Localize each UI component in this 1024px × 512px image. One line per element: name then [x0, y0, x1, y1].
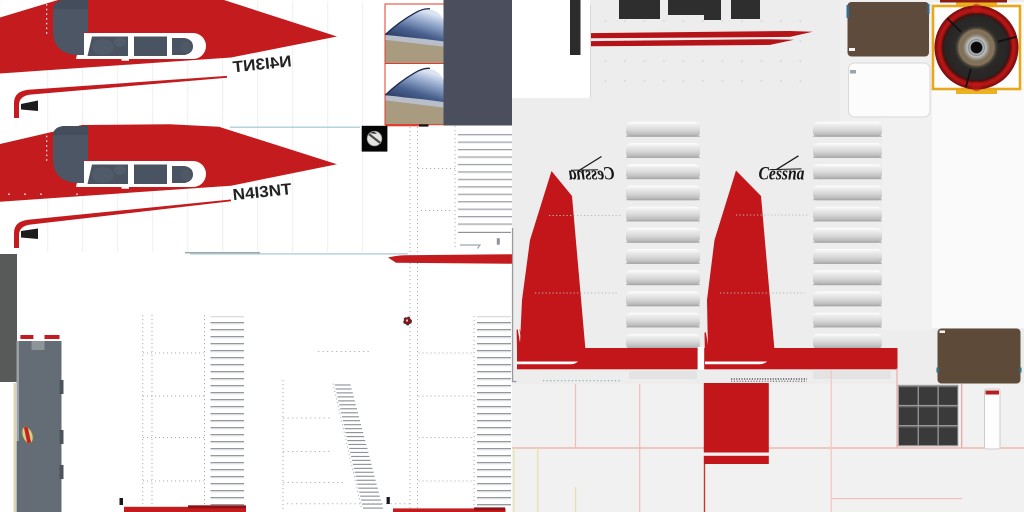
svg-text:Cessna: Cessna	[568, 164, 614, 185]
